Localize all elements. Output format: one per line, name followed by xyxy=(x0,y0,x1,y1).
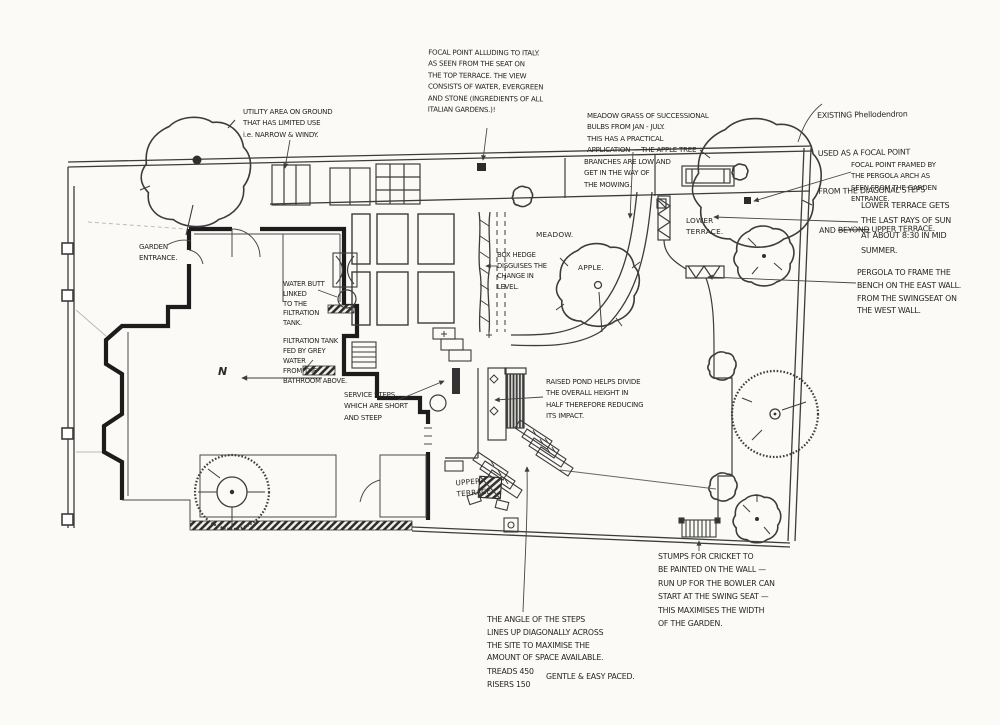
spiky-tree-lawn xyxy=(732,371,818,457)
note-steps-angle: THE ANGLE OF THE STEPS LINES UP DIAGONAL… xyxy=(487,614,603,665)
note-garden-entrance: GARDEN ENTRANCE. xyxy=(139,242,177,265)
courtyard-spiky-tree xyxy=(195,455,269,529)
label-north: N xyxy=(218,366,227,377)
note-service-steps: SERVICE STEPS WHICH ARE SHORT AND STEEP xyxy=(344,390,408,424)
note-water-butt: WATER BUTT LINKED TO THE FILTRATION TANK… xyxy=(283,280,325,329)
note-utility-area: UTILITY AREA ON GROUND THAT HAS LIMITED … xyxy=(243,107,332,141)
label-lower-terrace: LOWER TERRACE. xyxy=(686,215,723,238)
note-branches: BRANCHES ARE LOW AND GET IN THE WAY OF T… xyxy=(584,157,671,191)
note-meadow-grass: MEADOW GRASS OF SUCCESSIONAL BULBS FROM … xyxy=(587,111,709,157)
utility-tree xyxy=(140,117,251,235)
label-apple: APPLE. xyxy=(578,262,604,273)
shrub xyxy=(709,473,737,501)
garden-plan-sheet: FOCAL POINT ALLUDING TO ITALY. AS SEEN F… xyxy=(0,0,1000,725)
note-lower-terrace-sun: LOWER TERRACE GETS THE LAST RAYS OF SUN … xyxy=(861,198,951,258)
wall-pier xyxy=(452,368,460,394)
note-box-hedge: BOX HEDGE DISGUISES THE CHANGE IN LEVEL. xyxy=(497,250,547,292)
parterre xyxy=(352,214,492,361)
house xyxy=(104,229,460,521)
note-pergola-frame: PERGOLA TO FRAME THE BENCH ON THE EAST W… xyxy=(857,267,961,318)
stone xyxy=(512,186,532,206)
small-tree-bottom xyxy=(733,494,781,543)
small-tree-right xyxy=(734,226,794,286)
note-cricket-stumps: STUMPS FOR CRICKET TO BE PAINTED ON THE … xyxy=(658,550,775,630)
note-filtration: FILTRATION TANK FED BY GREY WATER FROM T… xyxy=(283,336,347,386)
service-stairs xyxy=(352,342,376,368)
swing-seat xyxy=(679,518,720,537)
shrub xyxy=(708,352,736,380)
note-gentle-paced: GENTLE & EASY PACED. xyxy=(546,671,635,684)
raised-pond xyxy=(507,374,524,428)
note-focal-point-italy: FOCAL POINT ALLUDING TO ITALY. AS SEEN F… xyxy=(428,48,544,117)
apple-tree xyxy=(556,244,640,332)
label-upper-terrace: UPPER TERRACE xyxy=(455,475,492,501)
label-meadow: MEADOW. xyxy=(536,229,573,240)
italian-focal-point-marker xyxy=(477,163,486,171)
note-treads-risers: TREADS 450 RISERS 150 xyxy=(487,666,534,692)
pergola-focal-marker xyxy=(744,197,751,204)
note-raised-pond: RAISED POND HELPS DIVIDE THE OVERALL HEI… xyxy=(546,377,643,423)
